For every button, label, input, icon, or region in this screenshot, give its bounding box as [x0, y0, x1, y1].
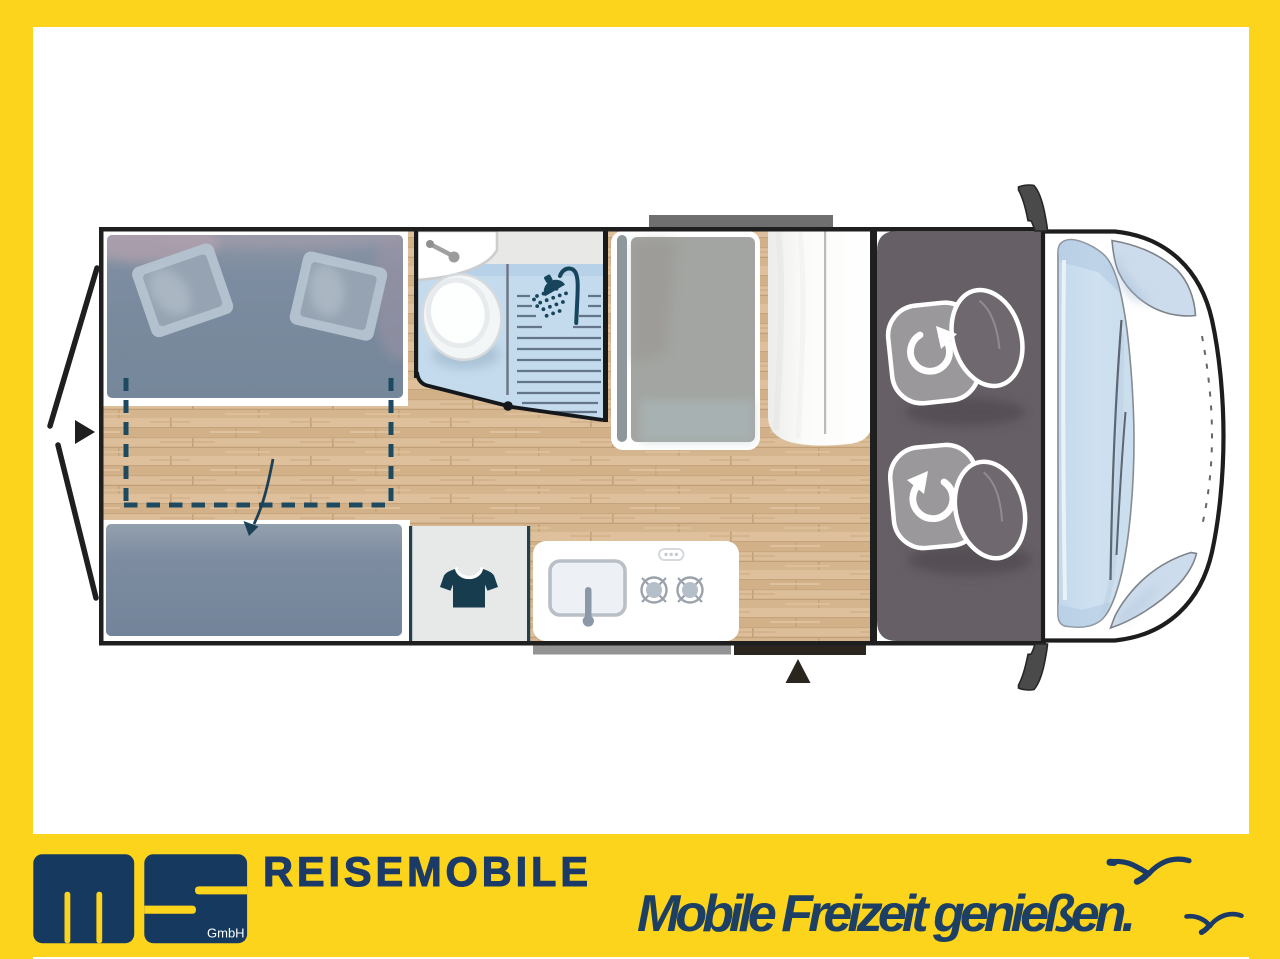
svg-text:Mobile Freizeit genießen.: Mobile Freizeit genießen. — [637, 885, 1136, 943]
svg-text:REISEMOBILE: REISEMOBILE — [263, 848, 588, 895]
svg-text:GmbH: GmbH — [207, 926, 245, 941]
